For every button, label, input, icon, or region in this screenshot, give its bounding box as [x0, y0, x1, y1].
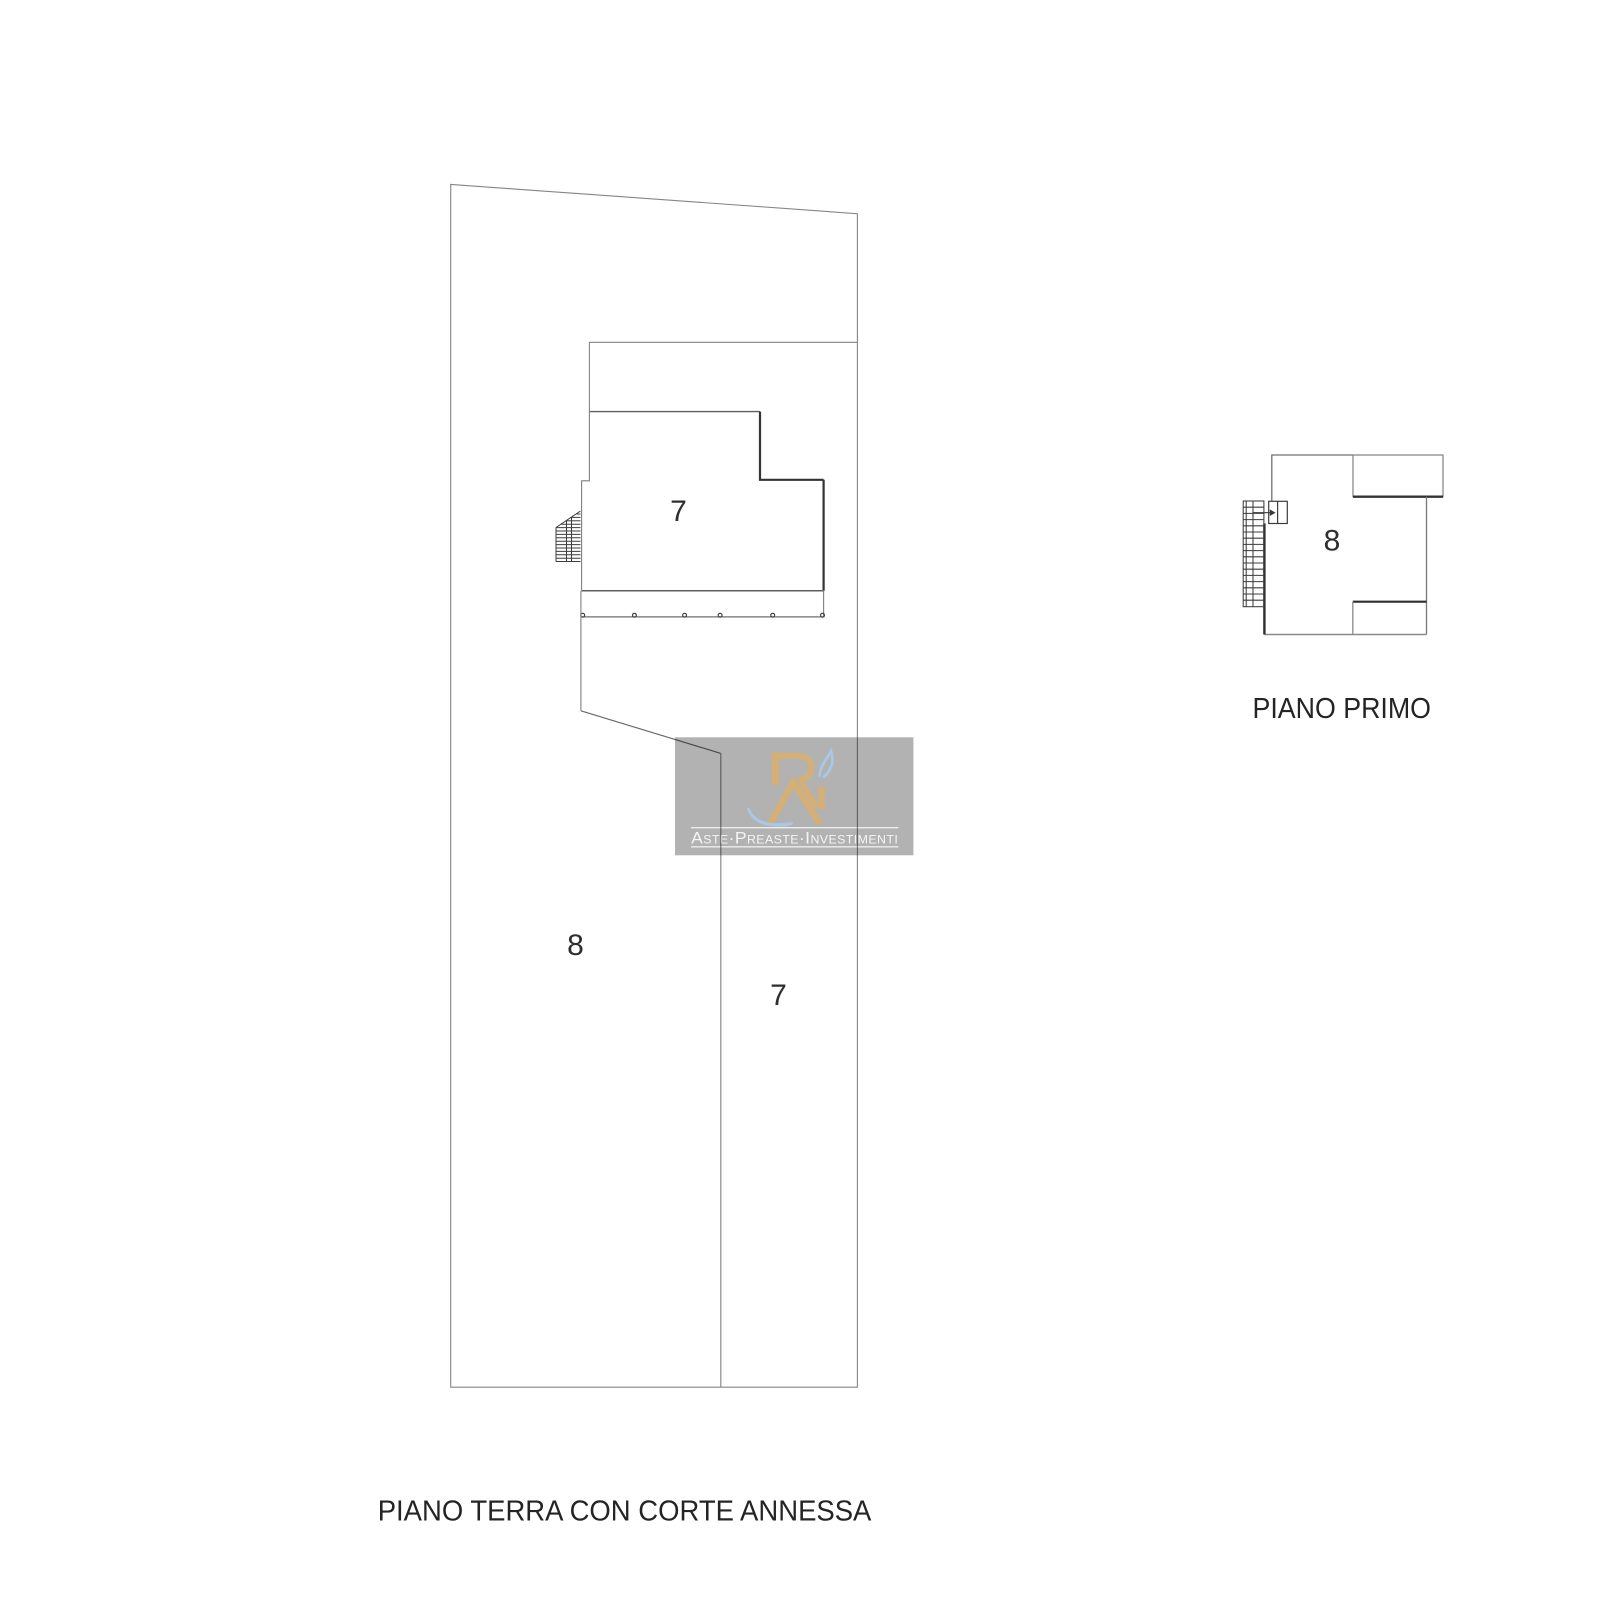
svg-text:7: 7 [770, 979, 787, 1012]
svg-text:PIANO PRIMO: PIANO PRIMO [1253, 693, 1432, 725]
svg-text:PIANO TERRA CON CORTE ANNESSA: PIANO TERRA CON CORTE ANNESSA [378, 1496, 872, 1528]
svg-text:7: 7 [670, 495, 687, 528]
svg-text:8: 8 [567, 929, 584, 962]
svg-text:Aste·Preaste·Investimenti: Aste·Preaste·Investimenti [691, 829, 898, 848]
svg-text:8: 8 [1324, 525, 1341, 558]
